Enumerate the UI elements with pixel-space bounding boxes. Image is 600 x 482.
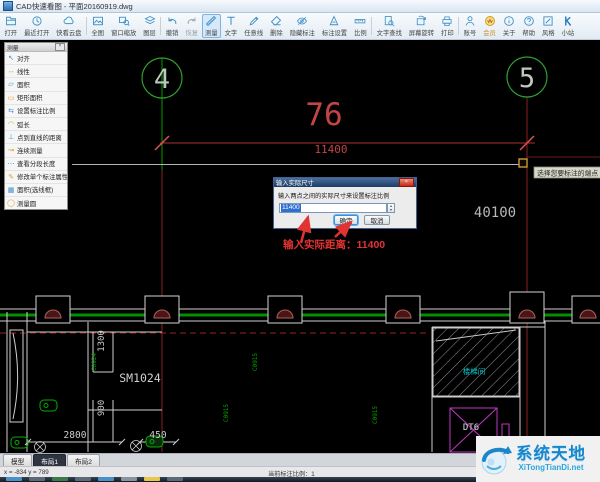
vip-button[interactable]: 会员 (480, 14, 500, 38)
taskbar-app-icon[interactable] (121, 477, 137, 481)
stair-label: 楼梯间 (463, 366, 486, 376)
print-button[interactable]: 打印 (438, 14, 458, 38)
help-button[interactable]: 帮助 (519, 14, 539, 38)
dim-1300: 1300 (97, 330, 107, 352)
watermark: 系统天地 XiTongTianDi.net (476, 436, 600, 482)
menu-item-align[interactable]: ↖对齐 (5, 52, 67, 65)
full-drawing-icon (92, 15, 104, 27)
window-zoom-button[interactable]: 窗口缩放 (108, 14, 140, 38)
tab-model[interactable]: 模型 (3, 454, 32, 466)
undo-button[interactable]: 撤销 (162, 14, 182, 38)
measure-menu: 测量 × ↖对齐 ↔线性 ▱面积 ▭矩形面积 ⇆设置标注比例 ◠弧长 ⊥点到直线… (4, 42, 68, 210)
menu-item-continuous[interactable]: ↝连续测量 (5, 144, 67, 157)
main-toolbar: 打开 最近打开 快看云盘 全图 窗口缩放 图层 撤销 恢复 测量 文字 任意线 … (0, 13, 600, 40)
cloud-drive-button[interactable]: 快看云盘 (53, 14, 85, 38)
set-scale-icon: ⇆ (7, 107, 15, 115)
dialog-close-icon[interactable]: × (399, 178, 414, 187)
cad-plan: 4 5 76 11400 40100 选择您要标注的端点 (0, 40, 600, 453)
dialog-title-bar[interactable]: 输入实际尺寸 × (274, 178, 416, 187)
dialog-body: 输入两点之间的实际尺寸来设置标注比例 11400 ▲ ▼ 确定 取消 (274, 187, 416, 229)
taskbar-app-icon[interactable] (6, 477, 22, 481)
circle-icon: ◯ (7, 199, 15, 207)
measure-icon (205, 15, 217, 27)
zoom-window-icon (118, 15, 130, 27)
folder-icon (5, 15, 17, 27)
dialog-prompt: 输入两点之间的实际尺寸来设置标注比例 (278, 191, 389, 200)
vip-icon (484, 15, 496, 27)
taskbar-app-icon-active[interactable] (144, 477, 160, 481)
tab-layout1[interactable]: 布局1 (33, 454, 66, 466)
bathroom-fixtures (11, 400, 163, 448)
rotate-icon (415, 15, 427, 27)
k-logo-icon (562, 15, 574, 27)
window-code-3: C0915 (223, 404, 230, 422)
clock-icon (31, 15, 43, 27)
dim-preview-text: 76 (305, 97, 342, 133)
title-bar: CAD快速看图 - 平面20160919.dwg (0, 0, 600, 13)
menu-item-segment-length[interactable]: ⋯查看分段长度 (5, 158, 67, 171)
current-scale-text: 当前标注比例：1 (268, 469, 315, 478)
dimension-line (72, 136, 535, 165)
taskbar-app-icon[interactable] (98, 477, 114, 481)
menu-item-set-scale[interactable]: ⇆设置标注比例 (5, 105, 67, 118)
taskbar-app-icon[interactable] (167, 477, 183, 481)
layers-button[interactable]: 图层 (140, 14, 160, 38)
continuous-icon: ↝ (7, 146, 15, 154)
pencil-icon (248, 15, 260, 27)
spinner-control[interactable]: ▲ ▼ (387, 203, 395, 213)
text-search-button[interactable]: 文字查找 (373, 14, 405, 38)
menu-item-point-to-line[interactable]: ⊥点到直线的距离 (5, 131, 67, 144)
measure-button[interactable]: 测量 (202, 14, 222, 38)
edit-icon: ✎ (7, 173, 15, 181)
grid-bubble-4-label: 4 (154, 64, 170, 95)
hide-annotation-button[interactable]: 隐藏标注 (286, 14, 318, 38)
cloud-icon (63, 15, 75, 27)
redo-icon (186, 15, 198, 27)
cursor-coordinates: x = -834 y = 789 (4, 469, 49, 476)
mini-site-button[interactable]: 小站 (558, 14, 578, 38)
watermark-name: 系统天地 (516, 446, 586, 463)
style-icon (542, 15, 554, 27)
text-icon (225, 15, 237, 27)
globe-logo-icon (478, 440, 514, 478)
window-title: CAD快速看图 - 平面20160919.dwg (16, 1, 133, 12)
full-view-button[interactable]: 全图 (88, 14, 108, 38)
eye-slash-icon (296, 15, 308, 27)
toolbar-separator (458, 17, 459, 35)
page-search-icon (383, 15, 395, 27)
menu-item-rect-area[interactable]: ▭矩形面积 (5, 92, 67, 105)
right-dim-text: 40100 (474, 205, 516, 221)
door-symbols (36, 292, 600, 323)
dim-450: 450 (149, 430, 166, 441)
menu-item-area[interactable]: ▱面积 (5, 78, 67, 91)
printer-icon (441, 15, 453, 27)
menu-item-edit-annotation[interactable]: ✎修改单个标注属性 (5, 171, 67, 184)
arc-icon: ◠ (7, 120, 15, 128)
taskbar-app-icon[interactable] (52, 477, 68, 481)
menu-item-measure-circle[interactable]: ◯测量圆 (5, 197, 67, 209)
size-input[interactable]: 11400 (279, 203, 387, 213)
size-input-value: 11400 (281, 204, 301, 212)
rect-area-icon: ▭ (7, 94, 15, 102)
measure-menu-header: 测量 × (5, 43, 67, 52)
about-button[interactable]: 关于 (499, 14, 519, 38)
linear-icon: ↔ (7, 68, 15, 75)
taskbar-app-icon[interactable] (75, 477, 91, 481)
annotation-settings-button[interactable]: 标注设置 (318, 14, 350, 38)
dim-2800: 2800 (64, 430, 87, 441)
menu-item-area-by-frame[interactable]: ▦面积(选线框) (5, 184, 67, 197)
menu-item-arc-length[interactable]: ◠弧长 (5, 118, 67, 131)
free-line-button[interactable]: 任意线 (241, 14, 267, 38)
room-label: SM1024 (119, 371, 161, 385)
dim-value-text: 11400 (314, 143, 347, 156)
account-button[interactable]: 账号 (460, 14, 480, 38)
info-icon (503, 15, 515, 27)
set-square-icon (328, 15, 340, 27)
toolbar-separator (160, 17, 161, 35)
spin-down-icon[interactable]: ▼ (388, 208, 394, 212)
layers-icon (144, 15, 156, 27)
frame-area-icon: ▦ (7, 186, 15, 194)
segments-icon: ⋯ (7, 160, 15, 168)
question-icon (523, 15, 535, 27)
stair-room: 楼梯间 (433, 328, 519, 396)
align-icon: ↖ (7, 54, 15, 62)
toolbar-separator (86, 17, 87, 35)
delete-button[interactable]: 删除 (267, 14, 287, 38)
window-code-4: C0915 (372, 406, 379, 424)
ok-button[interactable]: 确定 (334, 215, 358, 225)
snap-tooltip: 选择您要标注的端点 (534, 167, 600, 178)
app-window: CAD快速看图 - 平面20160919.dwg 打开 最近打开 快看云盘 全图… (0, 0, 600, 482)
cancel-button[interactable]: 取消 (364, 215, 390, 225)
drawing-canvas[interactable]: 4 5 76 11400 40100 选择您要标注的端点 (0, 40, 600, 453)
watermark-site[interactable]: XiTongTianDi.net (518, 464, 583, 472)
undo-icon (166, 15, 178, 27)
toolbar-separator (371, 17, 372, 35)
elevator-label: DT6 (463, 423, 479, 433)
style-button[interactable]: 风格 (539, 14, 559, 38)
area-icon: ▱ (7, 80, 15, 88)
measure-menu-title: 测量 (7, 43, 19, 52)
taskbar-app-icon[interactable] (29, 477, 45, 481)
snap-marker[interactable] (519, 159, 527, 167)
screen-rotate-button[interactable]: 屏幕旋转 (405, 14, 437, 38)
dialog-title: 输入实际尺寸 (276, 178, 314, 187)
menu-item-linear[interactable]: ↔线性 (5, 65, 67, 78)
eraser-icon (270, 15, 282, 27)
redo-button[interactable]: 恢复 (182, 14, 202, 38)
open-button[interactable]: 打开 (1, 14, 21, 38)
menu-close-icon[interactable]: × (55, 43, 65, 51)
window-code-1: C0924 (91, 353, 98, 371)
recent-open-button[interactable]: 最近打开 (21, 14, 53, 38)
text-button[interactable]: 文字 (221, 14, 241, 38)
ruler-icon (354, 15, 366, 27)
snap-tooltip-text: 选择您要标注的端点 (537, 169, 598, 178)
window-code-2: C0915 (252, 353, 259, 371)
grid-bubble-5-label: 5 (519, 63, 535, 94)
tab-layout2[interactable]: 布局2 (67, 454, 100, 466)
dim-900: 900 (97, 400, 107, 416)
scale-button[interactable]: 比例 (351, 14, 371, 38)
user-icon (464, 15, 476, 27)
perpendicular-icon: ⊥ (7, 133, 15, 141)
enter-size-dialog: 输入实际尺寸 × 输入两点之间的实际尺寸来设置标注比例 11400 ▲ ▼ 确定… (273, 177, 417, 229)
app-icon (3, 1, 13, 11)
